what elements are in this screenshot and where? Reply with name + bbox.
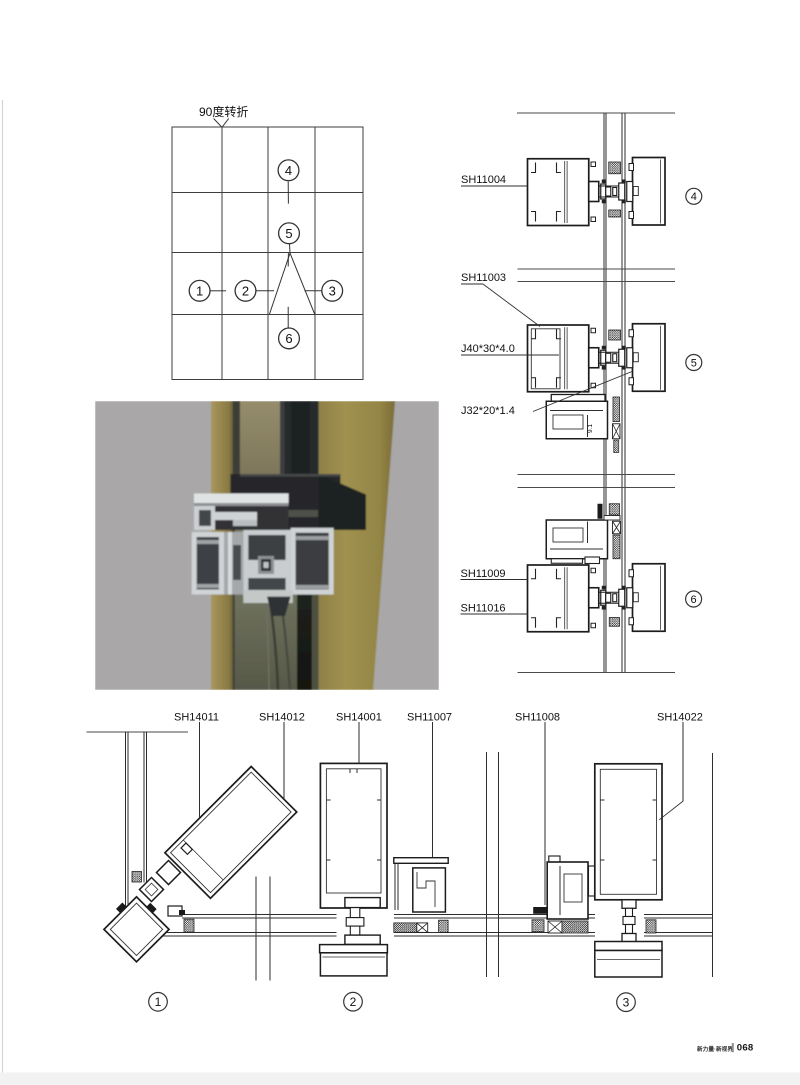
svg-text:90度转折: 90度转折 — [199, 104, 248, 119]
svg-text:SH11009: SH11009 — [461, 568, 506, 580]
svg-text:SH11016: SH11016 — [461, 603, 506, 615]
svg-text:SH14001: SH14001 — [336, 712, 382, 724]
svg-text:2: 2 — [350, 995, 357, 1009]
svg-text:3: 3 — [329, 284, 336, 299]
svg-text:SH11004: SH11004 — [461, 174, 506, 186]
svg-text:SH11007: SH11007 — [407, 712, 452, 724]
svg-text:SH11008: SH11008 — [515, 712, 560, 724]
svg-text:3: 3 — [623, 996, 630, 1010]
svg-text:4: 4 — [691, 191, 697, 203]
svg-text:9.1: 9.1 — [587, 424, 594, 433]
svg-text:5: 5 — [285, 226, 292, 241]
svg-text:6: 6 — [285, 331, 292, 346]
svg-text:SH11003: SH11003 — [461, 272, 506, 284]
svg-text:2: 2 — [242, 284, 249, 299]
svg-text:1: 1 — [155, 995, 162, 1009]
svg-text:J32*20*1.4: J32*20*1.4 — [461, 405, 515, 417]
svg-text:5: 5 — [691, 357, 697, 369]
svg-text:J40*30*4.0: J40*30*4.0 — [461, 343, 515, 355]
svg-text:4: 4 — [285, 163, 292, 178]
svg-text:068: 068 — [737, 1043, 754, 1054]
svg-text:SH14012: SH14012 — [259, 712, 305, 724]
svg-text:SH14022: SH14022 — [657, 712, 703, 724]
svg-text:新力量·新视界: 新力量·新视界 — [697, 1045, 733, 1053]
svg-text:SH14011: SH14011 — [174, 712, 219, 724]
svg-text:1: 1 — [196, 284, 203, 299]
svg-text:6: 6 — [691, 594, 697, 606]
